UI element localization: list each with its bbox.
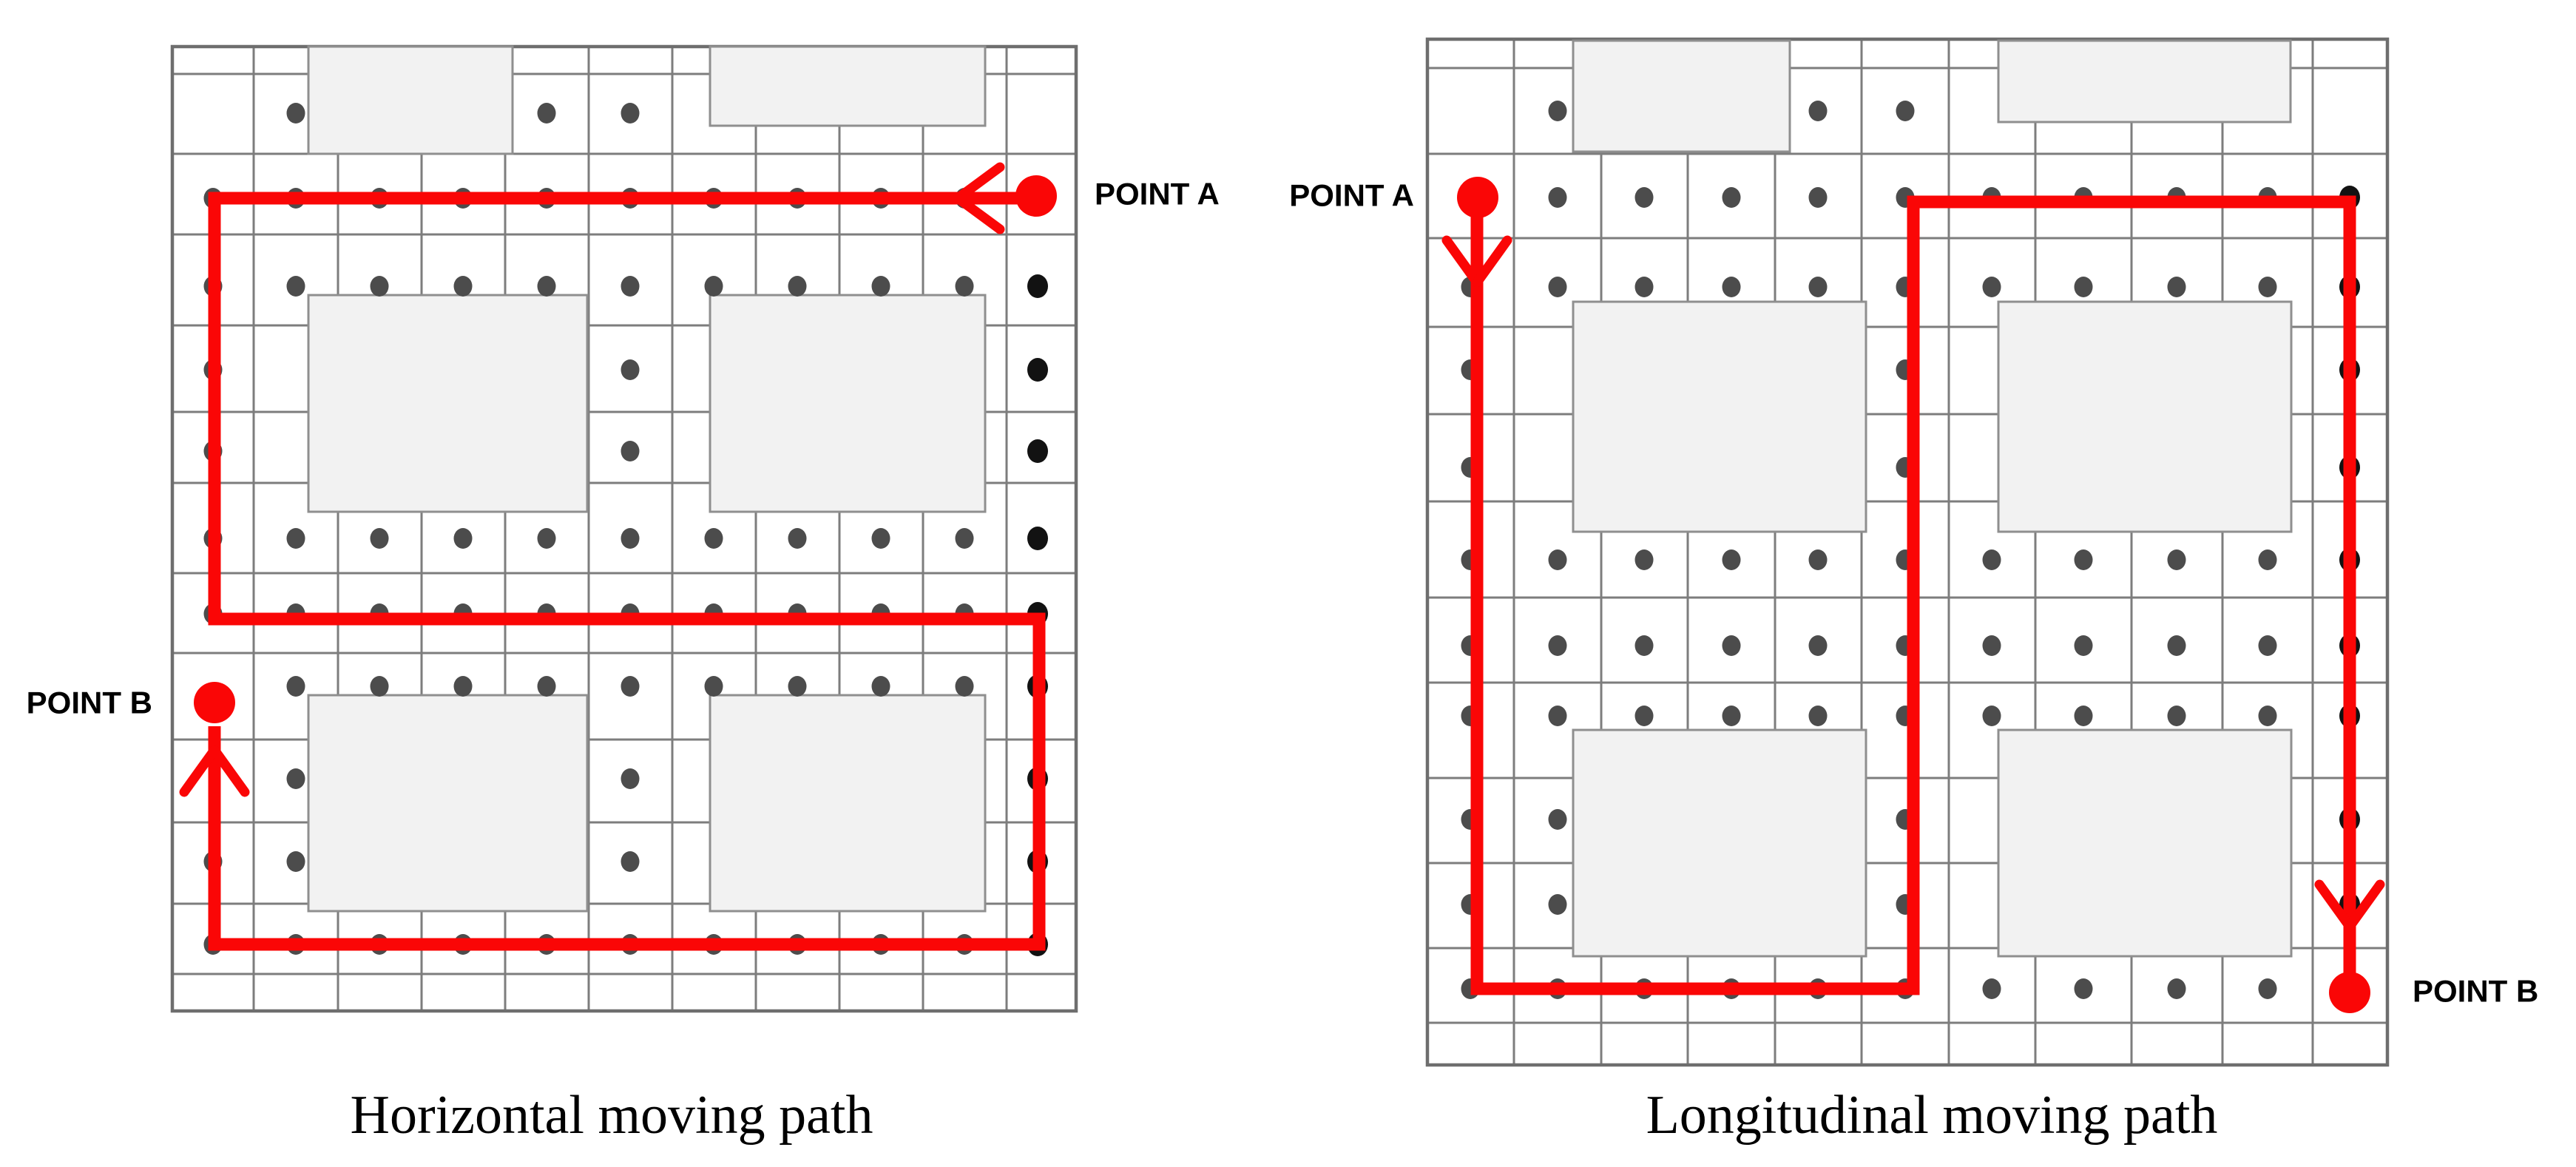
waypoint-dot bbox=[788, 528, 807, 549]
boundary-dot bbox=[1027, 358, 1048, 382]
point-a-label: POINT A bbox=[1095, 177, 1220, 212]
waypoint-dot bbox=[1809, 635, 1828, 656]
panel-caption: Horizontal moving path bbox=[351, 1085, 873, 1146]
point-a-label: POINT A bbox=[1289, 178, 1414, 213]
waypoint-dot bbox=[2259, 277, 2277, 297]
waypoint-dot bbox=[2075, 978, 2093, 999]
waypoint-dot bbox=[371, 276, 389, 297]
obstacle-block bbox=[710, 695, 985, 911]
waypoint-dot bbox=[2168, 978, 2186, 999]
panel-longitudinal: POINT APOINT BLongitudinal moving path bbox=[1289, 39, 2538, 1146]
waypoint-dot bbox=[621, 441, 640, 461]
waypoint-dot bbox=[2075, 706, 2093, 726]
waypoint-dot bbox=[1723, 706, 1741, 726]
obstacle-block bbox=[1998, 730, 2291, 956]
path-diagram: POINT APOINT BHorizontal moving pathPOIN… bbox=[0, 0, 2576, 1167]
waypoint-dot bbox=[1896, 101, 1915, 121]
obstacle-block bbox=[710, 47, 985, 126]
obstacle-block bbox=[308, 47, 513, 154]
waypoint-dot bbox=[1549, 549, 1567, 570]
waypoint-dot bbox=[538, 103, 556, 124]
waypoint-dot bbox=[621, 103, 640, 124]
boundary-dot bbox=[1027, 274, 1048, 298]
point-b-marker bbox=[194, 682, 235, 723]
waypoint-dot bbox=[1983, 277, 2001, 297]
waypoint-dot bbox=[705, 676, 723, 697]
point-a-marker bbox=[1015, 175, 1057, 217]
waypoint-dot bbox=[287, 851, 305, 872]
waypoint-dot bbox=[872, 528, 890, 549]
waypoint-dot bbox=[1809, 101, 1828, 121]
point-b-label: POINT B bbox=[27, 686, 152, 720]
waypoint-dot bbox=[1809, 549, 1828, 570]
waypoint-dot bbox=[1549, 635, 1567, 656]
waypoint-dot bbox=[1983, 706, 2001, 726]
page-background bbox=[0, 0, 2576, 1167]
waypoint-dot bbox=[1635, 549, 1654, 570]
waypoint-dot bbox=[1549, 706, 1567, 726]
waypoint-dot bbox=[1723, 277, 1741, 297]
point-a-marker bbox=[1457, 177, 1498, 218]
waypoint-dot bbox=[538, 676, 556, 697]
obstacle-block bbox=[1573, 730, 1866, 956]
waypoint-dot bbox=[2168, 277, 2186, 297]
waypoint-dot bbox=[1723, 635, 1741, 656]
waypoint-dot bbox=[2259, 706, 2277, 726]
waypoint-dot bbox=[2259, 549, 2277, 570]
waypoint-dot bbox=[956, 276, 974, 297]
waypoint-dot bbox=[1983, 635, 2001, 656]
waypoint-dot bbox=[454, 676, 473, 697]
waypoint-dot bbox=[1635, 187, 1654, 208]
waypoint-dot bbox=[2075, 635, 2093, 656]
waypoint-dot bbox=[2168, 706, 2186, 726]
waypoint-dot bbox=[621, 676, 640, 697]
waypoint-dot bbox=[287, 103, 305, 124]
waypoint-dot bbox=[1549, 101, 1567, 121]
waypoint-dot bbox=[2075, 549, 2093, 570]
waypoint-dot bbox=[956, 528, 974, 549]
waypoint-dot bbox=[621, 276, 640, 297]
panel-caption: Longitudinal moving path bbox=[1646, 1085, 2218, 1146]
waypoint-dot bbox=[2168, 549, 2186, 570]
waypoint-dot bbox=[621, 851, 640, 872]
point-b-label: POINT B bbox=[2413, 974, 2538, 1009]
waypoint-dot bbox=[1723, 187, 1741, 208]
waypoint-dot bbox=[2259, 978, 2277, 999]
obstacle-block bbox=[308, 295, 587, 512]
obstacle-block bbox=[308, 695, 587, 911]
obstacle-block bbox=[1998, 302, 2291, 532]
boundary-dot bbox=[1027, 439, 1048, 463]
waypoint-dot bbox=[1809, 187, 1828, 208]
waypoint-dot bbox=[788, 676, 807, 697]
waypoint-dot bbox=[872, 276, 890, 297]
waypoint-dot bbox=[287, 276, 305, 297]
waypoint-dot bbox=[1809, 706, 1828, 726]
waypoint-dot bbox=[1549, 809, 1567, 830]
waypoint-dot bbox=[872, 676, 890, 697]
waypoint-dot bbox=[705, 276, 723, 297]
waypoint-dot bbox=[538, 528, 556, 549]
waypoint-dot bbox=[371, 528, 389, 549]
waypoint-dot bbox=[2259, 635, 2277, 656]
obstacle-block bbox=[1998, 41, 2291, 122]
waypoint-dot bbox=[287, 528, 305, 549]
waypoint-dot bbox=[371, 676, 389, 697]
waypoint-dot bbox=[2168, 635, 2186, 656]
waypoint-dot bbox=[287, 676, 305, 697]
waypoint-dot bbox=[287, 768, 305, 789]
point-b-marker bbox=[2329, 972, 2370, 1013]
waypoint-dot bbox=[956, 676, 974, 697]
obstacle-block bbox=[710, 295, 985, 512]
waypoint-dot bbox=[454, 276, 473, 297]
waypoint-dot bbox=[621, 528, 640, 549]
waypoint-dot bbox=[1549, 187, 1567, 208]
obstacle-block bbox=[1573, 41, 1790, 152]
waypoint-dot bbox=[788, 276, 807, 297]
waypoint-dot bbox=[1983, 978, 2001, 999]
waypoint-dot bbox=[1723, 549, 1741, 570]
waypoint-dot bbox=[621, 359, 640, 380]
waypoint-dot bbox=[454, 528, 473, 549]
obstacle-block bbox=[1573, 302, 1866, 532]
figure-canvas: POINT APOINT BHorizontal moving pathPOIN… bbox=[0, 0, 2576, 1167]
waypoint-dot bbox=[538, 276, 556, 297]
waypoint-dot bbox=[1549, 277, 1567, 297]
waypoint-dot bbox=[2075, 277, 2093, 297]
waypoint-dot bbox=[621, 768, 640, 789]
waypoint-dot bbox=[1983, 549, 2001, 570]
waypoint-dot bbox=[1635, 635, 1654, 656]
waypoint-dot bbox=[1809, 277, 1828, 297]
boundary-dot bbox=[1027, 527, 1048, 550]
waypoint-dot bbox=[1549, 894, 1567, 915]
waypoint-dot bbox=[705, 528, 723, 549]
waypoint-dot bbox=[1635, 706, 1654, 726]
waypoint-dot bbox=[1635, 277, 1654, 297]
